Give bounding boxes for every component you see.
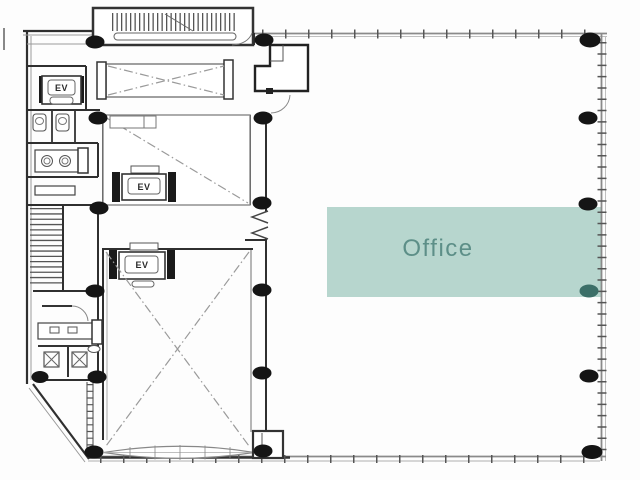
- escalator-left-cap: [97, 62, 106, 99]
- column-dot: [85, 446, 104, 459]
- washstand-end-cabinet: [78, 148, 88, 173]
- elevator-3-right-jamb: [167, 250, 175, 279]
- column-dot: [580, 370, 599, 383]
- escalator-right-cap: [224, 60, 233, 99]
- column-dot: [580, 33, 601, 48]
- column-dot: [89, 112, 108, 125]
- curtain-wall-top: [250, 34, 607, 37]
- restroom-lower-door-arc: [72, 306, 88, 321]
- elevator-3-left-jamb: [109, 250, 117, 279]
- column-dot: [582, 445, 603, 459]
- column-dot: [253, 284, 272, 297]
- elevator-3-landing-sill: [132, 281, 154, 287]
- toilet-fixture-2: [56, 114, 69, 131]
- restroom-lower-end-cabinet: [92, 320, 102, 344]
- void-room-x-diagonals: [106, 252, 249, 446]
- column-dot: [254, 445, 273, 458]
- elevator-2-left-jamb: [112, 172, 120, 202]
- floor-drain-2-x: [72, 352, 87, 367]
- column-dot: [579, 112, 598, 125]
- urinal-fixture: [88, 346, 100, 353]
- elevator-3-sill: [130, 243, 158, 250]
- restroom-lower: [38, 306, 102, 377]
- ladder-rails: [87, 382, 93, 452]
- elevator-3-label: EV: [135, 260, 148, 270]
- toilet-fixture-1: [33, 114, 46, 131]
- escalator-upper: [97, 60, 233, 99]
- floor-plan: Office: [0, 0, 640, 480]
- column-dot: [86, 36, 105, 49]
- office-zone: Office: [327, 207, 601, 297]
- elevator-1-sill: [50, 97, 73, 104]
- column-dot: [88, 371, 107, 384]
- column-dot: [90, 202, 109, 215]
- wall-break-symbol: [252, 211, 268, 239]
- wall-break-zigzag: [252, 211, 268, 239]
- column-dot: [253, 367, 272, 380]
- column-dot: [86, 285, 105, 298]
- floor-plan-page: Office: [0, 0, 640, 480]
- escalator-body: [106, 64, 226, 97]
- washstand-upper: [35, 148, 88, 195]
- machine-room-nub: [266, 88, 273, 94]
- machine-room: [255, 45, 308, 113]
- office-zone-label: Office: [402, 235, 473, 262]
- column-dot: [254, 112, 273, 125]
- elevator-1-label: EV: [55, 83, 68, 93]
- floor-drain-1-x: [44, 352, 59, 367]
- elevator-2-label: EV: [137, 182, 150, 192]
- curtain-wall-right: [602, 33, 606, 461]
- machine-room-outline: [255, 45, 308, 91]
- ladder: [87, 382, 93, 452]
- machine-room-door-arc: [271, 95, 290, 113]
- column-dot: [255, 34, 274, 47]
- elevator-2-right-jamb: [168, 172, 176, 202]
- column-dot-on-office: [580, 285, 599, 298]
- restroom-lower-counter: [38, 323, 96, 339]
- lobby-cabinet: [110, 116, 156, 128]
- column-dot: [579, 198, 598, 211]
- column-dot: [253, 197, 272, 210]
- column-dot: [32, 371, 49, 383]
- service-shelf: [35, 186, 75, 195]
- elevator-2-sill: [131, 166, 159, 173]
- stairwell-top: [93, 8, 253, 45]
- restroom-upper: [33, 110, 75, 143]
- elevator-1: EV: [39, 76, 84, 104]
